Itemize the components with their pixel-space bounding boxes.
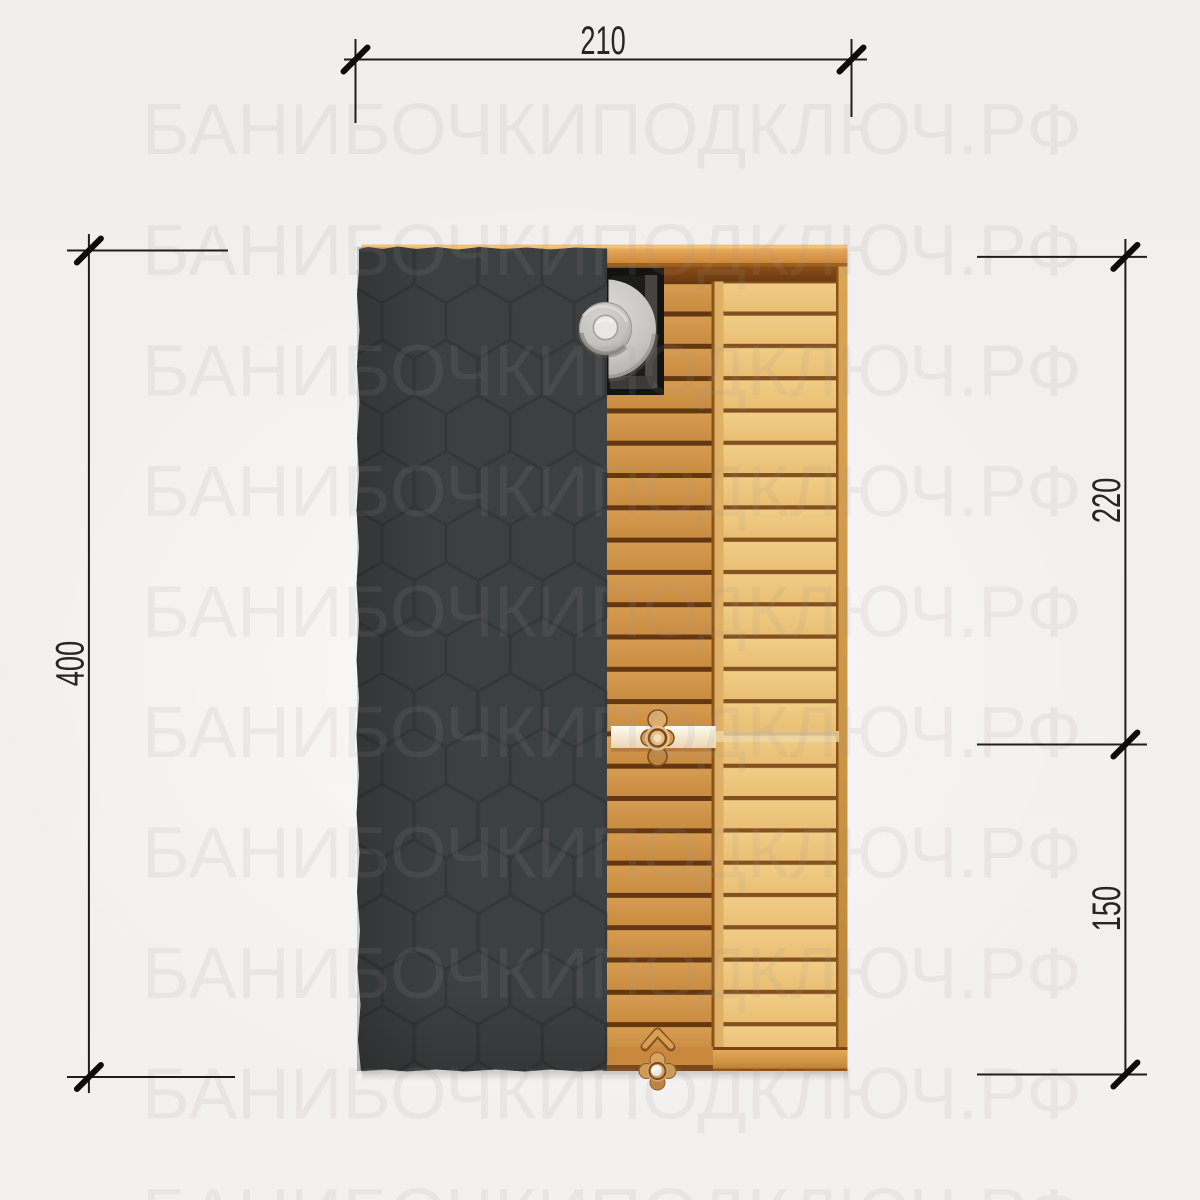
svg-text:БАНИБОЧКИПОДКЛЮЧ.РФ: БАНИБОЧКИПОДКЛЮЧ.РФ: [142, 1174, 1082, 1200]
svg-text:БАНИБОЧКИПОДКЛЮЧ.РФ: БАНИБОЧКИПОДКЛЮЧ.РФ: [142, 813, 1082, 894]
svg-text:БАНИБОЧКИПОДКЛЮЧ.РФ: БАНИБОЧКИПОДКЛЮЧ.РФ: [142, 1054, 1082, 1135]
svg-text:400: 400: [48, 641, 92, 686]
svg-text:210: 210: [580, 19, 625, 63]
svg-text:150: 150: [1085, 886, 1129, 931]
svg-text:БАНИБОЧКИПОДКЛЮЧ.РФ: БАНИБОЧКИПОДКЛЮЧ.РФ: [142, 89, 1082, 170]
svg-text:БАНИБОЧКИПОДКЛЮЧ.РФ: БАНИБОЧКИПОДКЛЮЧ.РФ: [142, 210, 1082, 291]
svg-text:БАНИБОЧКИПОДКЛЮЧ.РФ: БАНИБОЧКИПОДКЛЮЧ.РФ: [142, 571, 1082, 652]
svg-text:БАНИБОЧКИПОДКЛЮЧ.РФ: БАНИБОЧКИПОДКЛЮЧ.РФ: [142, 451, 1082, 532]
svg-text:220: 220: [1085, 478, 1129, 523]
svg-text:БАНИБОЧКИПОДКЛЮЧ.РФ: БАНИБОЧКИПОДКЛЮЧ.РФ: [142, 692, 1082, 773]
svg-text:БАНИБОЧКИПОДКЛЮЧ.РФ: БАНИБОЧКИПОДКЛЮЧ.РФ: [142, 933, 1082, 1014]
svg-text:БАНИБОЧКИПОДКЛЮЧ.РФ: БАНИБОЧКИПОДКЛЮЧ.РФ: [142, 330, 1082, 411]
